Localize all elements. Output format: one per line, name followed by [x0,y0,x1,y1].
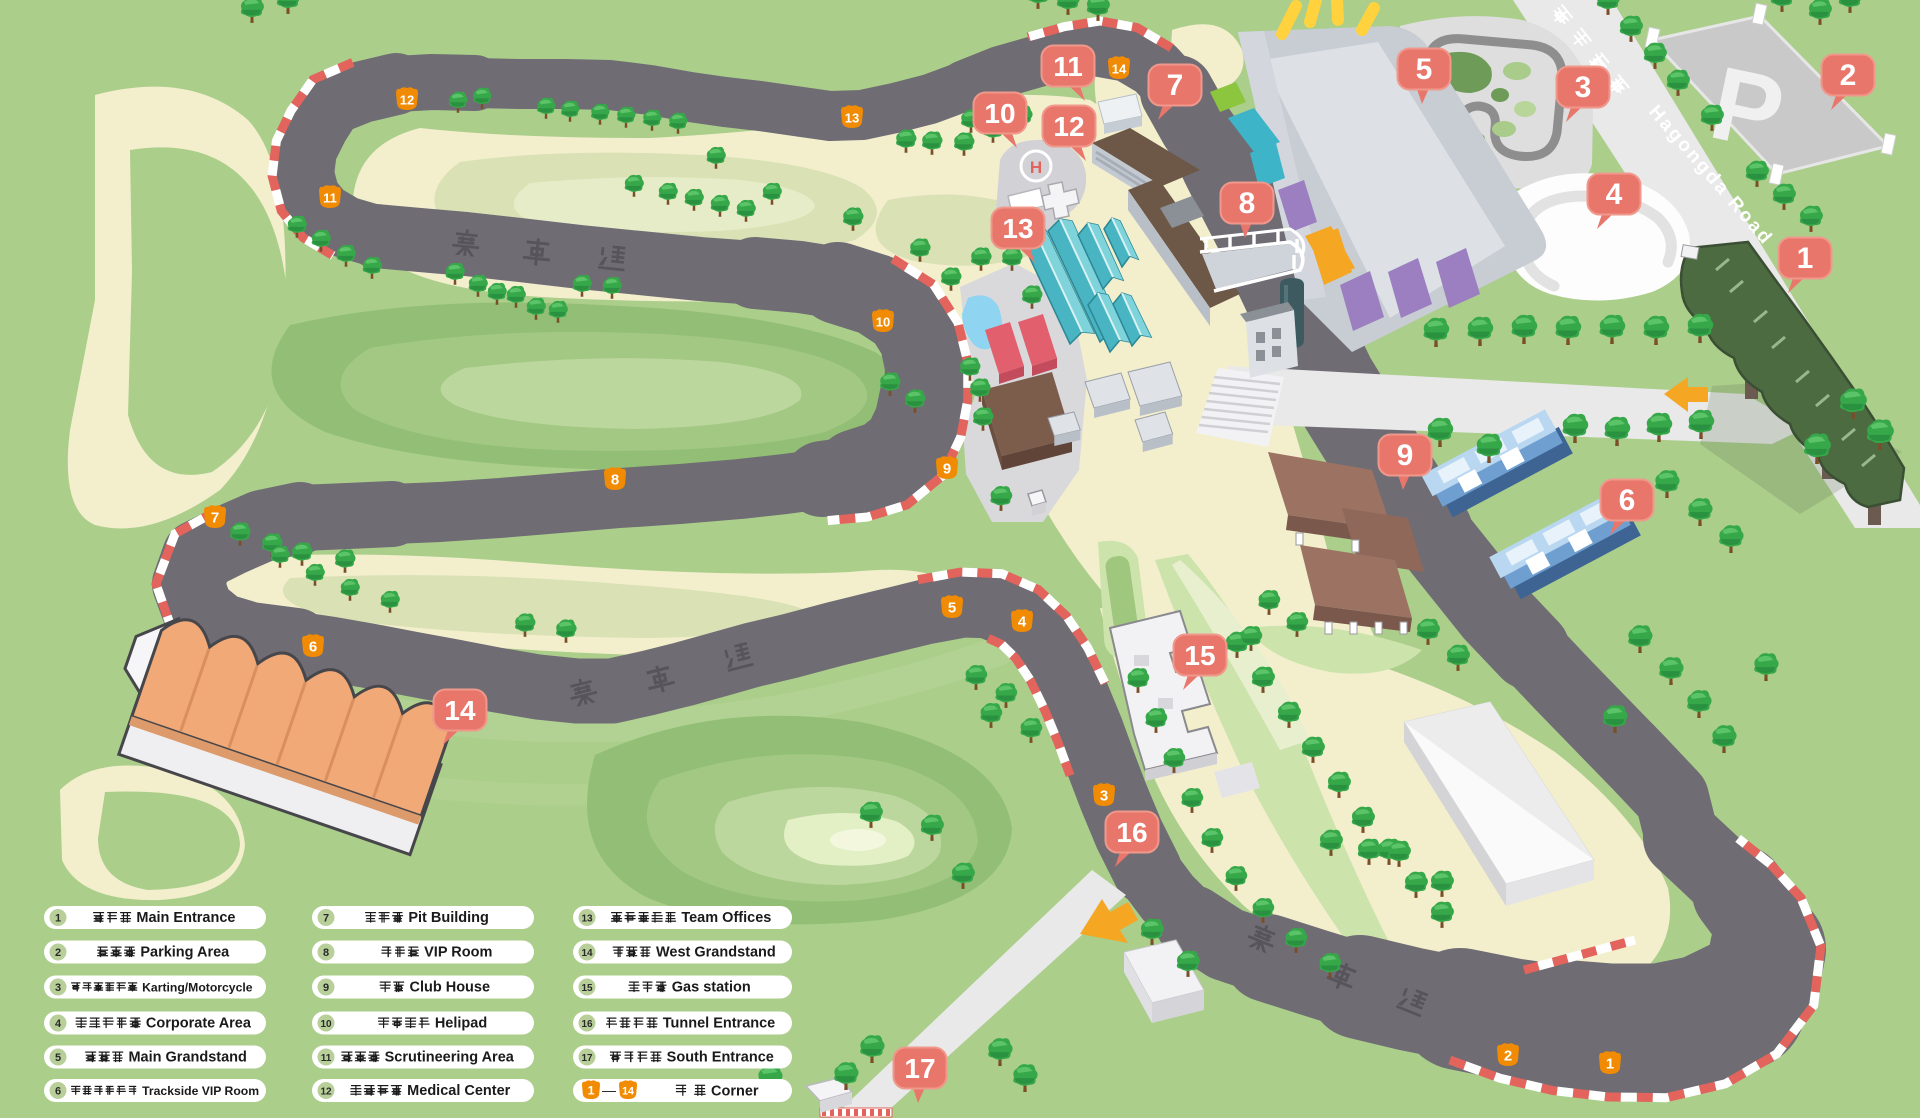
svg-text:Tunnel Entrance: Tunnel Entrance [663,1016,776,1032]
svg-text:1: 1 [1606,1056,1614,1073]
svg-text:8: 8 [323,947,329,959]
svg-text:7: 7 [1167,69,1184,102]
svg-text:12: 12 [400,93,414,108]
svg-text:H: H [1030,158,1042,177]
svg-text:16: 16 [1116,817,1147,848]
svg-text:5: 5 [55,1052,61,1064]
svg-text:South Entrance: South Entrance [667,1050,774,1066]
svg-text:Club House: Club House [409,980,490,996]
svg-text:9: 9 [943,461,951,478]
svg-text:15: 15 [581,983,593,994]
svg-text:4: 4 [1018,614,1027,631]
svg-text:11: 11 [321,1053,332,1064]
svg-text:5: 5 [1416,53,1433,86]
svg-text:Helipad: Helipad [435,1016,487,1032]
svg-text:4: 4 [1606,178,1623,211]
svg-text:17: 17 [581,1053,593,1064]
svg-text:3: 3 [1100,788,1108,805]
svg-text:6: 6 [309,639,317,656]
svg-text:Karting/Motorcycle: Karting/Motorcycle [142,981,253,995]
svg-text:1: 1 [55,913,61,925]
svg-text:16: 16 [581,1019,593,1030]
svg-text:6: 6 [55,1086,61,1098]
svg-text:9: 9 [1397,439,1414,472]
svg-text:VIP Room: VIP Room [424,945,492,961]
svg-text:5: 5 [948,600,956,617]
svg-text:6: 6 [1619,484,1636,517]
svg-text:10: 10 [320,1019,332,1030]
svg-text:Team Offices: Team Offices [681,910,771,926]
svg-text:12: 12 [320,1087,332,1098]
svg-text:11: 11 [1053,51,1083,82]
svg-text:14: 14 [581,948,593,959]
svg-text:14: 14 [622,1086,634,1098]
svg-text:Medical Center: Medical Center [407,1083,510,1099]
svg-text:Gas station: Gas station [672,980,751,996]
svg-text:17: 17 [904,1053,935,1084]
svg-text:1: 1 [1797,242,1814,275]
svg-text:Corporate Area: Corporate Area [146,1016,252,1032]
svg-text:11: 11 [323,191,337,206]
svg-text:Main Grandstand: Main Grandstand [128,1050,246,1066]
svg-text:14: 14 [1112,62,1127,77]
svg-text:10: 10 [876,315,890,330]
svg-text:9: 9 [323,982,329,994]
svg-text:4: 4 [55,1018,62,1030]
svg-text:2: 2 [1504,1048,1512,1065]
svg-text:13: 13 [845,111,859,126]
svg-text:15: 15 [1184,640,1215,671]
svg-text:7: 7 [211,510,219,527]
svg-text:Parking Area: Parking Area [140,945,230,961]
svg-text:Scrutineering Area: Scrutineering Area [385,1050,515,1066]
svg-text:—: — [602,1082,616,1098]
svg-text:Trackside VIP Room: Trackside VIP Room [142,1084,259,1098]
svg-text:12: 12 [1053,111,1084,142]
svg-text:Corner: Corner [711,1084,759,1100]
svg-text:Pit Building: Pit Building [408,910,489,926]
svg-text:Main Entrance: Main Entrance [136,910,235,926]
svg-text:8: 8 [611,472,619,489]
svg-text:13: 13 [581,914,593,925]
svg-text:14: 14 [444,695,476,726]
svg-text:3: 3 [1575,71,1592,104]
svg-text:7: 7 [323,913,329,925]
svg-text:3: 3 [55,982,61,994]
svg-text:8: 8 [1239,187,1256,220]
svg-text:13: 13 [1002,213,1033,244]
svg-text:2: 2 [55,947,61,959]
svg-text:2: 2 [1840,59,1857,92]
svg-text:1: 1 [588,1084,595,1098]
svg-text:West Grandstand: West Grandstand [656,945,776,961]
svg-text:10: 10 [984,98,1015,129]
